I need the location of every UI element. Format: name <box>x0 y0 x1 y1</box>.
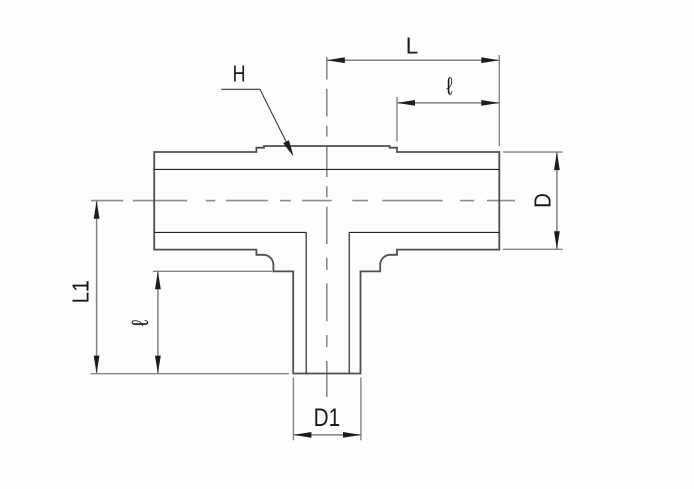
svg-text:H: H <box>233 61 246 87</box>
svg-text:D1: D1 <box>314 403 341 431</box>
svg-text:ℓ: ℓ <box>446 72 453 100</box>
svg-text:ℓ: ℓ <box>127 319 154 326</box>
svg-text:L1: L1 <box>67 280 93 303</box>
svg-text:L: L <box>406 32 418 59</box>
svg-text:D: D <box>529 193 556 208</box>
